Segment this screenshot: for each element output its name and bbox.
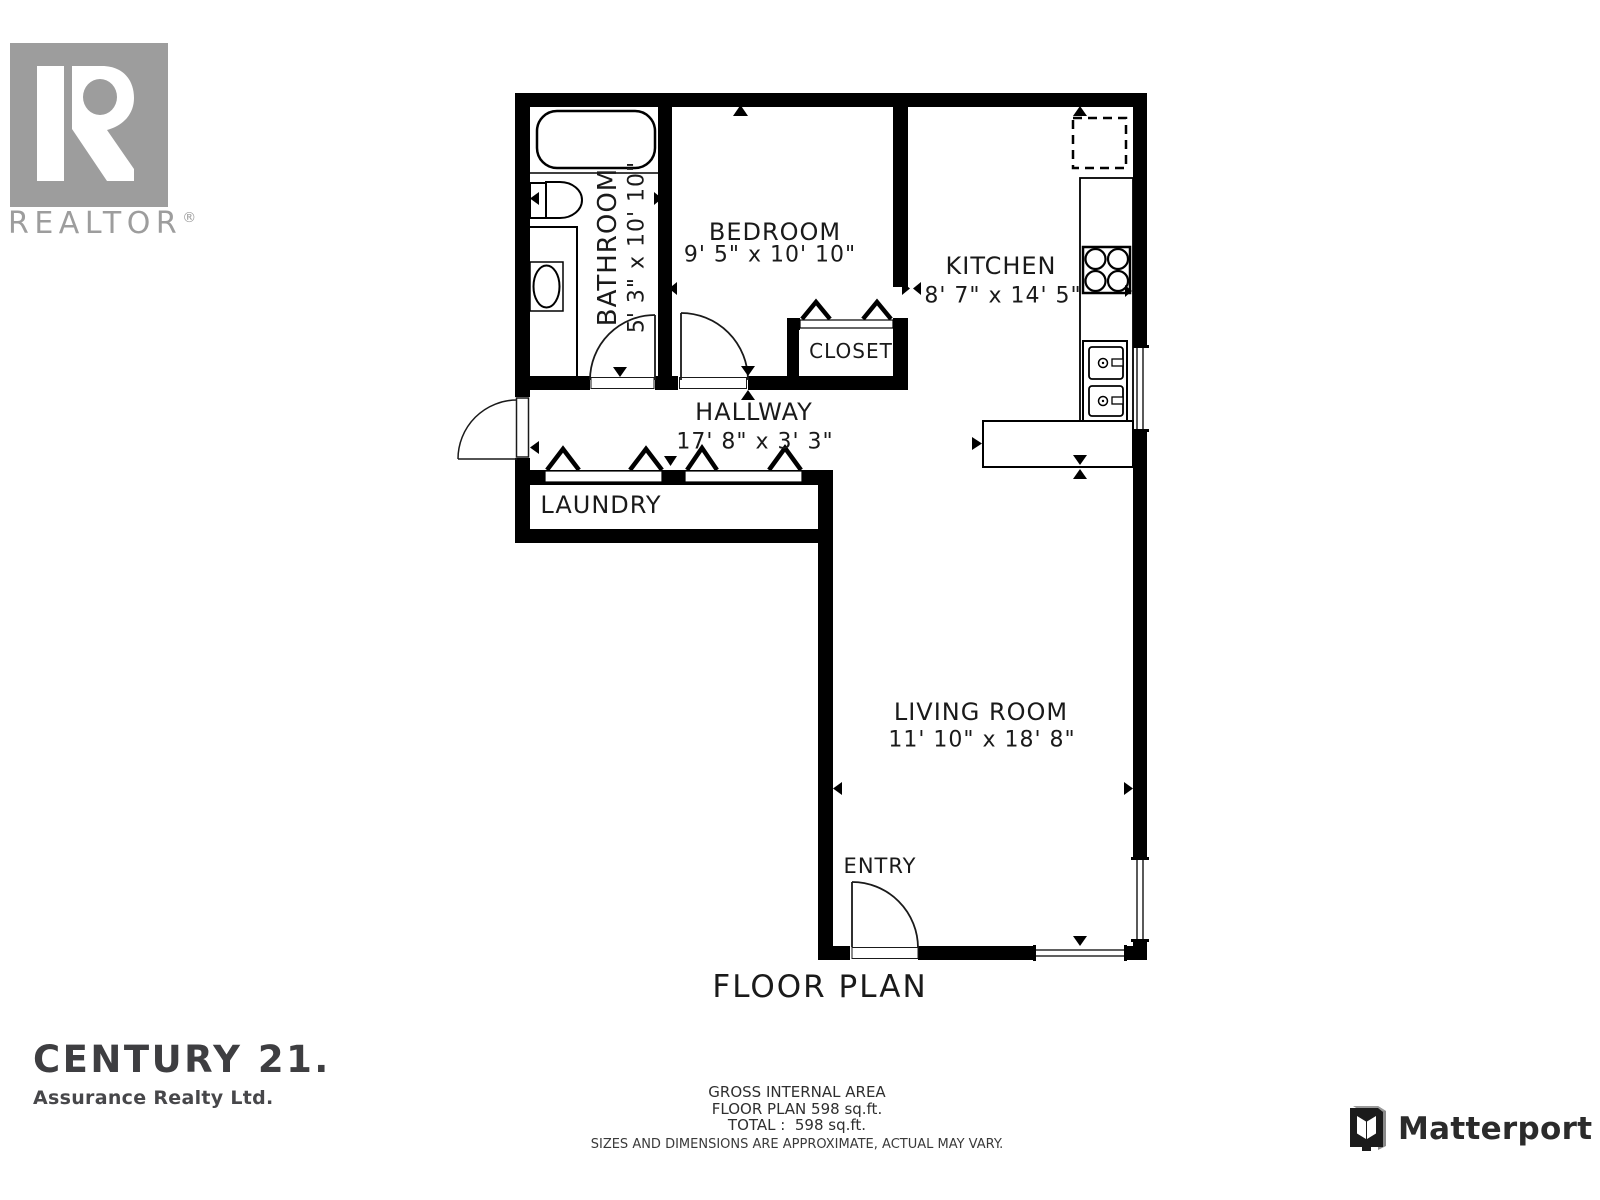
room-label-entry: ENTRY <box>844 854 917 878</box>
room-label-kitchen: KITCHEN <box>946 252 1057 280</box>
bedroom-door <box>680 313 749 389</box>
closet-bifold-doors <box>800 302 893 328</box>
gross-internal-area-label: GROSS INTERNAL AREA <box>591 1084 1004 1101</box>
room-label-hallway: HALLWAY <box>695 398 813 426</box>
total-area-value: TOTAL : 598 sq.ft. <box>591 1117 1004 1134</box>
century21-subtitle: Assurance Realty Ltd. <box>33 1087 331 1109</box>
registered-mark: ® <box>182 210 196 226</box>
disclaimer-text: SIZES AND DIMENSIONS ARE APPROXIMATE, AC… <box>591 1137 1004 1154</box>
room-dims-living-room: 11' 10" x 18' 8" <box>888 728 1075 753</box>
room-dims-bathroom: 5' 3" x 10' 10" <box>625 161 650 333</box>
room-label-living-room: LIVING ROOM <box>894 698 1068 726</box>
floor-plan-area-value: FLOOR PLAN 598 sq.ft. <box>591 1101 1004 1118</box>
century21-title: CENTURY 21. <box>33 1038 331 1081</box>
room-dims-hallway: 17' 8" x 3' 3" <box>676 430 833 455</box>
century21-logo: CENTURY 21. Assurance Realty Ltd. <box>33 1038 331 1109</box>
realtor-r-icon <box>10 40 170 210</box>
stove-icon <box>1083 247 1130 293</box>
kitchen-sink-icon <box>1083 341 1127 421</box>
entry-door <box>852 882 918 959</box>
realtor-wordmark: REALTOR® <box>8 206 196 241</box>
window-living-bottom <box>1033 945 1127 961</box>
hallway-exterior-door <box>458 398 529 459</box>
room-dims-kitchen: 8' 7" x 14' 5" <box>924 284 1081 309</box>
peninsula-counter <box>983 421 1133 467</box>
bathroom-vanity <box>530 227 577 376</box>
bathroom-sink-icon <box>534 266 560 308</box>
realtor-logo <box>10 40 170 214</box>
room-label-closet: CLOSET <box>809 339 893 363</box>
room-label-laundry: LAUNDRY <box>540 491 661 519</box>
area-summary: GROSS INTERNAL AREA FLOOR PLAN 598 sq.ft… <box>591 1084 1004 1153</box>
room-dims-bedroom: 9' 5" x 10' 10" <box>684 243 856 268</box>
kitchen-counter <box>983 178 1133 467</box>
matterport-icon <box>1345 1102 1391 1152</box>
matterport-wordmark: Matterport <box>1398 1111 1592 1147</box>
plan-title: FLOOR PLAN <box>712 969 927 1005</box>
window-living-right <box>1131 857 1149 942</box>
realtor-word-text: REALTOR <box>8 206 182 241</box>
fridge-dashed-box <box>1073 118 1126 168</box>
room-label-bathroom: BATHROOM <box>593 168 623 326</box>
